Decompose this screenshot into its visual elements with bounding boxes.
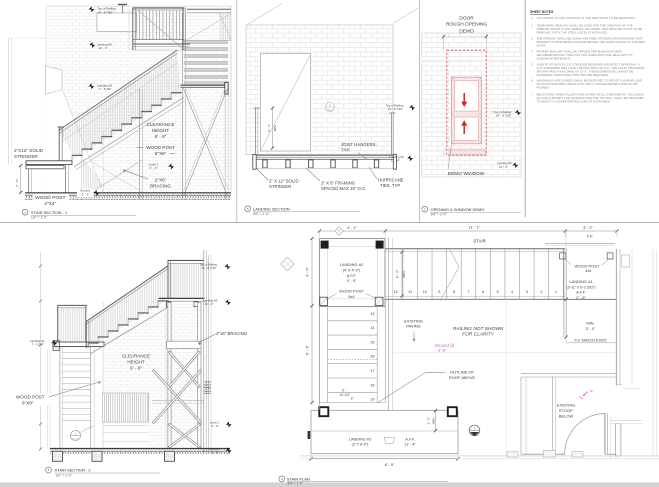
svg-text:A.F.F.: A.F.F. [347,274,357,278]
svg-text:A-501: A-501 [328,108,333,111]
svg-text:11' - 4": 11' - 4" [99,46,108,50]
svg-text:MIN.: MIN. [432,417,436,424]
svg-text:3' - 0": 3' - 0" [427,417,431,425]
svg-text:EXCEEDED. ADDITIONAL POST WILL: EXCEEDED. ADDITIONAL POST WILL BE REQUIR… [537,73,610,77]
svg-text:F.V.: F.V. [587,235,593,239]
svg-text:3: 3 [526,290,528,294]
svg-text:3' - 0": 3' - 0" [586,327,596,331]
svg-text:CLEARANCE: CLEARANCE [146,122,174,127]
svg-text:RAILING NOT SHOWN: RAILING NOT SHOWN [453,326,504,332]
svg-text:HEIGHT: HEIGHT [127,360,145,365]
svg-text:MIN.: MIN. [402,270,406,277]
svg-text:OPENING & WINDOW DEMO: OPENING & WINDOW DEMO [431,207,485,212]
svg-text:CLEARANCE: CLEARANCE [122,354,150,359]
svg-text:5: 5 [247,207,249,211]
svg-text:1/2" = 1'-0": 1/2" = 1'-0" [31,215,48,219]
svg-text:19: 19 [370,398,374,402]
svg-text:-2' - 6": -2' - 6" [81,192,90,196]
svg-text:6' - 8": 6' - 8" [155,134,167,139]
svg-text:LANDING #1: LANDING #1 [569,279,593,284]
svg-text:9' - 5": 9' - 5" [347,279,357,283]
svg-text:10: 10 [423,290,427,294]
svg-text:DOOR: DOOR [459,16,474,22]
svg-text:STAIR SECTION - 2: STAIR SECTION - 2 [55,468,92,473]
svg-text:10 1/2": 10 1/2" [340,393,351,397]
svg-text:STAIR: STAIR [473,238,486,243]
svg-text:7: 7 [467,290,469,294]
svg-text:LANDING SECTION: LANDING SECTION [253,206,290,211]
svg-text:6: 6 [482,290,484,294]
svg-text:TO RESIST A CONCENTRATED LOAD: TO RESIST A CONCENTRATED LOAD OF 50 POUN… [537,99,611,103]
svg-text:WOOD POST: WOOD POST [339,289,364,294]
svg-text:BRACING: BRACING [150,184,171,189]
svg-text:15: 15 [370,340,374,344]
svg-text:16: 16 [370,355,374,359]
svg-text:3' - 0": 3' - 0" [583,226,593,230]
svg-text:3' - 0": 3' - 0" [267,124,271,132]
svg-text:6' - 3": 6' - 3" [306,345,310,355]
svg-text:WOOD POST: WOOD POST [575,264,600,269]
svg-text:11: 11 [408,290,412,294]
svg-text:11' - 4": 11' - 4" [404,443,416,447]
svg-text:HURRICANE: HURRICANE [378,178,404,183]
svg-text:JOIST HANGERS,: JOIST HANGERS, [341,142,377,147]
svg-text:DEMO: DEMO [459,29,474,35]
svg-text:11' - 4": 11' - 4" [391,159,400,163]
svg-text:- 2'-6": - 2'-6" [435,348,447,353]
svg-text:4"X4": 4"X4" [44,201,56,207]
svg-text:11' - 4": 11' - 4" [205,302,214,306]
svg-text:REMOVED UNTIL THE STEEL LINTEL: REMOVED UNTIL THE STEEL LINTEL IS INSTAL… [537,30,609,34]
svg-text:STAIR PLAN: STAIR PLAN [287,476,310,481]
svg-text:SPACED MAX 16" O.C.: SPACED MAX 16" O.C. [321,186,366,191]
svg-text:WOOD POST: WOOD POST [146,145,175,150]
svg-text:11' - 1": 11' - 1" [469,226,481,230]
svg-text:14' - 8 7/16": 14' - 8 7/16" [97,10,113,14]
svg-text:2"x6" BRACING: 2"x6" BRACING [216,331,247,336]
svg-text:14: 14 [370,326,374,330]
svg-text:2: 2 [540,290,542,294]
svg-text:3/4" = 1'-0": 3/4" = 1'-0" [253,212,270,216]
svg-text:TYP.: TYP. [341,147,350,152]
svg-text:(3'-11" X 6'-3 3/32"): (3'-11" X 6'-3 3/32") [566,286,595,290]
svg-text:3/4" = 1'-0": 3/4" = 1'-0" [431,212,448,216]
svg-text:EXISTING: EXISTING [404,318,423,323]
svg-text:HEIGHT: HEIGHT [152,128,170,133]
svg-text:TIES, TYP: TIES, TYP [380,183,400,188]
svg-text:14' - 8 7/16": 14' - 8 7/16" [201,266,216,270]
svg-text:DOOR.: DOOR. [537,43,547,47]
svg-text:A.F.F.: A.F.F. [576,291,586,295]
svg-text:2"X12" SOLID: 2"X12" SOLID [14,148,44,153]
svg-text:14' - 8 7/16": 14' - 8 7/16" [388,107,403,111]
svg-text:6' - 8": 6' - 8" [130,366,142,371]
svg-text:POUNDS.: POUNDS. [537,85,550,89]
svg-text:3: 3 [48,468,50,472]
svg-text:1: 1 [24,210,26,214]
svg-text:WOOD POST: WOOD POST [35,195,65,201]
svg-text:2" X 12" SOLID: 2" X 12" SOLID [269,179,299,184]
svg-text:MIN.: MIN. [273,125,277,132]
svg-text:2" X 6" FRAMING: 2" X 6" FRAMING [321,181,356,186]
svg-text:8: 8 [453,290,455,294]
svg-text:LANDING #3: LANDING #3 [349,437,371,441]
svg-text:STRINGER: STRINGER [269,184,291,189]
svg-text:17: 17 [370,369,374,373]
svg-text:1: 1 [555,290,557,294]
svg-text:ROUGH OPENING: ROUGH OPENING [446,22,488,28]
svg-text:1/2" = 1'-0": 1/2" = 1'-0" [56,473,73,477]
svg-text:4: 4 [511,290,513,294]
svg-text:ANY WIRING IN THE LOCATION OF: ANY WIRING IN THE LOCATION OF THE NEW DO… [537,16,636,20]
svg-text:14' - 8 7/16": 14' - 8 7/16" [496,114,511,118]
svg-text:11' - 4": 11' - 4" [499,165,508,169]
svg-text:3' - 0": 3' - 0" [396,269,400,278]
svg-text:13: 13 [370,312,374,316]
svg-text:9: 9 [438,290,440,294]
svg-text:2' - 6": 2' - 6" [15,179,19,187]
svg-text:0' - 0": 0' - 0" [150,166,158,170]
svg-text:DISSIMILAR MATERIALS.: DISSIMILAR MATERIALS. [537,56,571,60]
svg-text:A.F.F.: A.F.F. [405,437,415,441]
svg-text:FOR CLARITY: FOR CLARITY [462,331,495,337]
svg-text:4' - 1": 4' - 1" [347,226,357,230]
svg-text:LANDING #2: LANDING #2 [340,262,364,267]
svg-text:F.: F. [351,397,354,401]
svg-text:STAIR SECTION - 1: STAIR SECTION - 1 [31,210,68,215]
svg-text:ROOF ABOVE: ROOF ABOVE [449,375,476,380]
svg-text:PAVING: PAVING [406,324,421,329]
svg-text:4x4: 4x4 [585,269,591,273]
svg-text:(3' X 8'-9"): (3' X 8'-9") [352,443,369,447]
svg-text:6x6: 6x6 [348,295,354,299]
svg-text:2"X6": 2"X6" [155,178,167,183]
svg-text:6"X6": 6"X6" [155,151,167,156]
svg-text:2' - 6": 2' - 6" [576,296,586,300]
svg-text:4' - 0": 4' - 0" [306,267,310,277]
svg-text:7' - 5 3/4": 7' - 5 3/4" [99,87,112,91]
svg-text:12: 12 [393,290,397,294]
svg-text:OF 50 POUNDS PER LINEAR FOOT A: OF 50 POUNDS PER LINEAR FOOT AND A CONCE… [537,82,639,86]
svg-text:PREVENT IT FROM BEING SQUARE B: PREVENT IT FROM BEING SQUARE BEFORE THE … [537,40,646,44]
svg-text:BELOW: BELOW [559,413,574,418]
svg-text:0' - 0": 0' - 0" [212,424,219,428]
svg-text:SHEET NOTES: SHEET NOTES [530,10,554,14]
svg-text:STRINGER: STRINGER [14,154,38,159]
svg-text:4: 4 [281,477,283,481]
svg-text:WOOD POST: WOOD POST [16,395,45,400]
svg-text:STOOP: STOOP [559,408,573,413]
svg-text:DEMO WINDOW: DEMO WINDOW [448,171,485,177]
svg-text:(4' X 4'-3"): (4' X 4'-3") [343,268,361,272]
svg-text:EXISTING: EXISTING [557,403,576,408]
svg-text:A-501: A-501 [73,437,78,440]
svg-text:F.V. MATCH EXIST.: F.V. MATCH EXIST. [574,338,607,342]
svg-text:8' - 9": 8' - 9" [385,463,395,467]
svg-text:7' - 5 3/4": 7' - 5 3/4" [32,342,44,346]
svg-text:5: 5 [497,290,499,294]
svg-text:3' -: 3' - [342,389,347,393]
svg-text:2: 2 [424,207,426,211]
svg-text:MIN.: MIN. [586,322,594,326]
svg-text:18: 18 [370,383,374,387]
svg-text:6"X8": 6"X8" [22,401,34,406]
svg-text:OUTLINE OF: OUTLINE OF [450,370,475,375]
svg-text:-2' - 6": -2' - 6" [211,450,219,454]
svg-text:3/4" = 1'-0": 3/4" = 1'-0" [287,482,303,486]
